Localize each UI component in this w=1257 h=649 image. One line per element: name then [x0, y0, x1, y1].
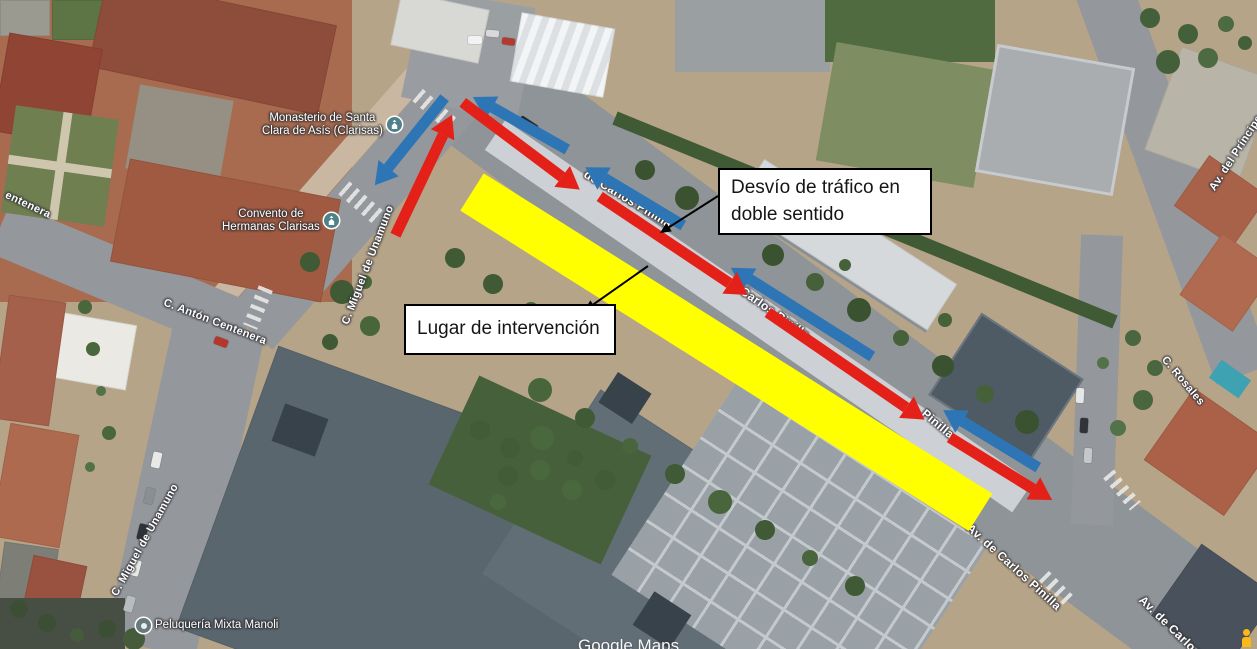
- pegman-head: [1243, 629, 1250, 636]
- poi-convento-line1: Convento de: [222, 208, 320, 221]
- car: [468, 36, 482, 44]
- map-watermark: Google Maps: [578, 636, 679, 649]
- building-block: [0, 0, 50, 36]
- church-icon: [324, 213, 339, 228]
- tree-cluster: [635, 160, 655, 180]
- sports-field: [816, 42, 994, 188]
- car: [1080, 418, 1089, 433]
- street-label-rosales: C. Rosales: [1159, 354, 1207, 408]
- building-block: [1144, 388, 1257, 516]
- poi-convento: Convento de Hermanas Clarisas: [222, 208, 339, 233]
- building-block: [390, 0, 489, 64]
- tree-cluster: [78, 300, 92, 314]
- tree-cluster: [300, 252, 320, 272]
- poi-peluqueria: Peluquería Mixta Manoli: [136, 618, 278, 633]
- pegman-icon: [1240, 629, 1252, 648]
- church-icon: [387, 117, 402, 132]
- tree-cluster: [445, 248, 465, 268]
- diversion-label-line2: doble sentido: [731, 202, 919, 229]
- pegman-body: [1242, 637, 1251, 647]
- road-top-center: [675, 0, 830, 72]
- car: [1084, 448, 1093, 463]
- diversion-label-box: Desvío de tráfico en doble sentido: [718, 168, 932, 235]
- building-block: [0, 423, 79, 548]
- building-block: [0, 295, 66, 427]
- tree-cluster: [10, 600, 28, 618]
- poi-convento-line2: Hermanas Clarisas: [222, 221, 320, 234]
- poi-monasterio-line1: Monasterio de Santa: [262, 112, 383, 125]
- car: [486, 29, 500, 37]
- poi-dot-icon: [136, 618, 151, 633]
- poi-monasterio-line2: Clara de Asís (Clarisas): [262, 125, 383, 138]
- intervention-label-box: Lugar de intervención: [404, 304, 616, 355]
- intervention-label-text: Lugar de intervención: [417, 316, 600, 343]
- car: [1076, 388, 1085, 403]
- cloister-garden: [1, 105, 119, 226]
- sports-court: [975, 44, 1135, 196]
- tree-cluster: [1125, 330, 1141, 346]
- diversion-label-line1: Desvío de tráfico en: [731, 175, 919, 202]
- poi-peluqueria-name: Peluquería Mixta Manoli: [155, 619, 278, 632]
- annotated-satellite-map: C. Miguel de Unamuno C. Miguel de Unamun…: [0, 0, 1257, 649]
- tree-cluster: [470, 420, 490, 440]
- poi-monasterio: Monasterio de Santa Clara de Asís (Clari…: [262, 112, 402, 137]
- tree-cluster: [1140, 8, 1160, 28]
